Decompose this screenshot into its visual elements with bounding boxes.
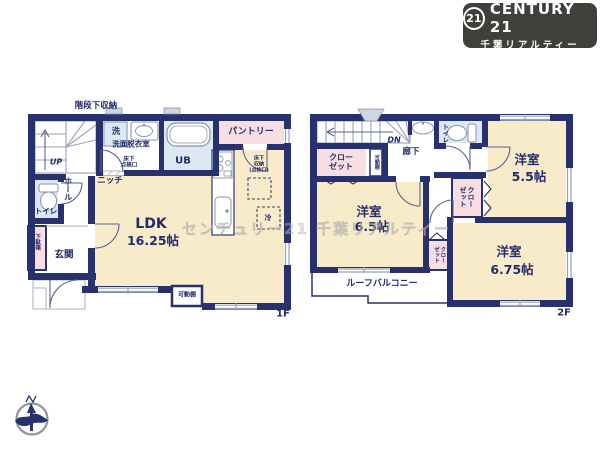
floor-hatch-label: 床下 点検口 <box>121 157 138 170</box>
stair-storage-label: 階段下収納 <box>75 102 118 112</box>
entrance-label: 玄関 <box>54 251 73 262</box>
washroom-door <box>101 150 123 172</box>
floor-plan-page: 階段下収納 UP ホール トイレ 下駄箱 玄関 洗 洗面脱衣室 床下 点検口 U… <box>0 0 600 450</box>
room-c-size-label: 6.75帖 <box>490 263 533 277</box>
bath-label: UB <box>175 155 191 167</box>
closet-nw-label: クロー ゼット <box>329 153 353 171</box>
window-room-c-south <box>500 300 540 307</box>
washroom-label: 洗面脱衣室 <box>112 141 150 150</box>
century21-logo: 21 CENTURY 21 千葉リアルティー <box>463 3 597 48</box>
pantry-label: パントリー <box>228 127 273 137</box>
window-ldk-south-left <box>98 286 158 294</box>
logo-21-badge-icon: 21 <box>463 7 485 30</box>
closet-center-label: クロー ゼット <box>459 187 475 208</box>
entrance-door <box>50 280 78 308</box>
floor-storage-label: 床下 収納 (点検口) <box>249 156 269 173</box>
window-1f-east-upper <box>284 129 291 143</box>
room-a-label: 洋室 <box>514 153 539 167</box>
balcony-label: ルーフバルコニー <box>346 279 417 289</box>
shoe-box-label: 下駄箱 <box>34 234 40 251</box>
watermark-text: センチュリー21 千葉リアルティー <box>182 218 451 239</box>
vanity-icon <box>131 122 158 140</box>
up-label: UP <box>50 157 62 166</box>
washer-label: 洗 <box>112 128 121 138</box>
toilet2f-door <box>446 146 470 170</box>
logo-subtitle-text: 千葉リアルティー <box>480 37 579 51</box>
hall-label: ホール <box>63 177 72 201</box>
window-room-a-east <box>566 168 573 202</box>
shelf2f-label: 可動棚 <box>373 155 379 170</box>
window-room-c-east <box>566 252 573 278</box>
window-1f-east-lower <box>284 243 291 265</box>
meter-tab-2 <box>164 108 180 114</box>
dn-label: DN <box>387 135 400 144</box>
toilet2f-icon <box>448 124 477 142</box>
shelf1f-label: 可動棚 <box>178 293 196 300</box>
niche-label: ニッチ <box>97 177 123 187</box>
ldk-size-label: 16.25帖 <box>127 234 179 248</box>
room-a-size-label: 5.5帖 <box>512 170 547 184</box>
room-c-label: 洋室 <box>496 245 521 259</box>
north-compass-icon <box>15 396 48 435</box>
corridor-label: 廊下 <box>402 148 419 158</box>
floor2-label: 2F <box>557 307 571 319</box>
window-ldk-south-right <box>215 303 257 311</box>
logo-brand-text: CENTURY 21 <box>490 0 597 36</box>
stairs-1f <box>35 121 96 173</box>
toilet1f-label: トイレ <box>35 208 58 217</box>
closet-small-label: クロー ゼット <box>433 247 446 264</box>
ldk-label: LDK <box>135 216 166 232</box>
floor1-label: 1F <box>276 308 290 320</box>
window-room-a-north <box>500 114 550 121</box>
toilet2f-label: トイレ <box>440 123 447 143</box>
logo-brand-row: 21 CENTURY 21 <box>463 0 597 36</box>
washbasin-icon <box>413 122 434 134</box>
bathtub-icon <box>167 123 210 146</box>
entrance-porch <box>33 280 85 309</box>
